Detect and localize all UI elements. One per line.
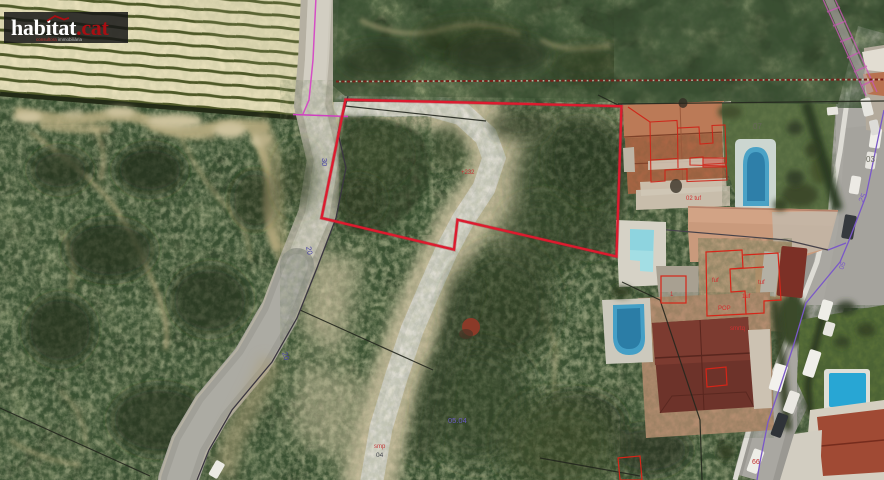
svg-text:66: 66	[752, 459, 760, 466]
svg-text:+232: +232	[461, 170, 475, 176]
svg-text:03: 03	[866, 155, 875, 164]
svg-text:02 tuf: 02 tuf	[686, 196, 701, 202]
svg-text:1uf: 1uf	[742, 294, 751, 300]
svg-text:fuf: fuf	[712, 278, 719, 284]
svg-text:tuf: tuf	[758, 280, 765, 286]
svg-text:smrtq: smrtq	[730, 326, 745, 332]
svg-text:smp: smp	[374, 444, 386, 450]
svg-text:05.04: 05.04	[448, 416, 467, 425]
svg-text:30: 30	[320, 158, 329, 166]
svg-text:POP: POP	[718, 306, 731, 312]
svg-text:07: 07	[753, 122, 762, 131]
svg-text:04: 04	[376, 452, 384, 459]
